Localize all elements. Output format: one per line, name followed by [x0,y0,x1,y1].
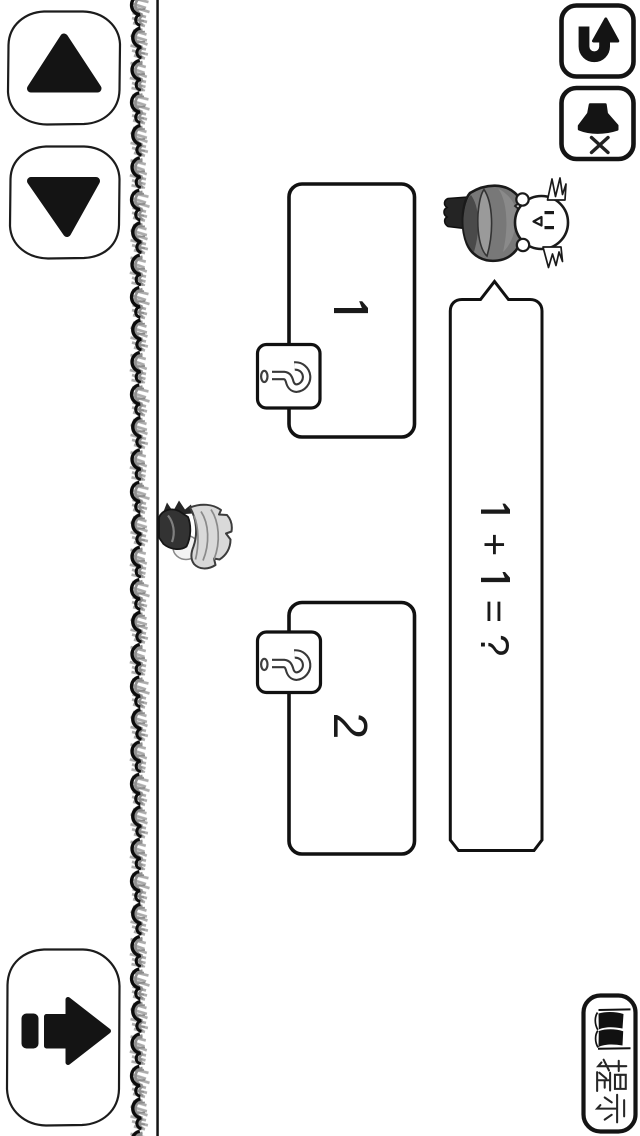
svg-text:+: + [472,533,516,556]
svg-text:=: = [472,600,516,623]
svg-text:2: 2 [323,713,376,740]
svg-text:?: ? [472,634,516,656]
